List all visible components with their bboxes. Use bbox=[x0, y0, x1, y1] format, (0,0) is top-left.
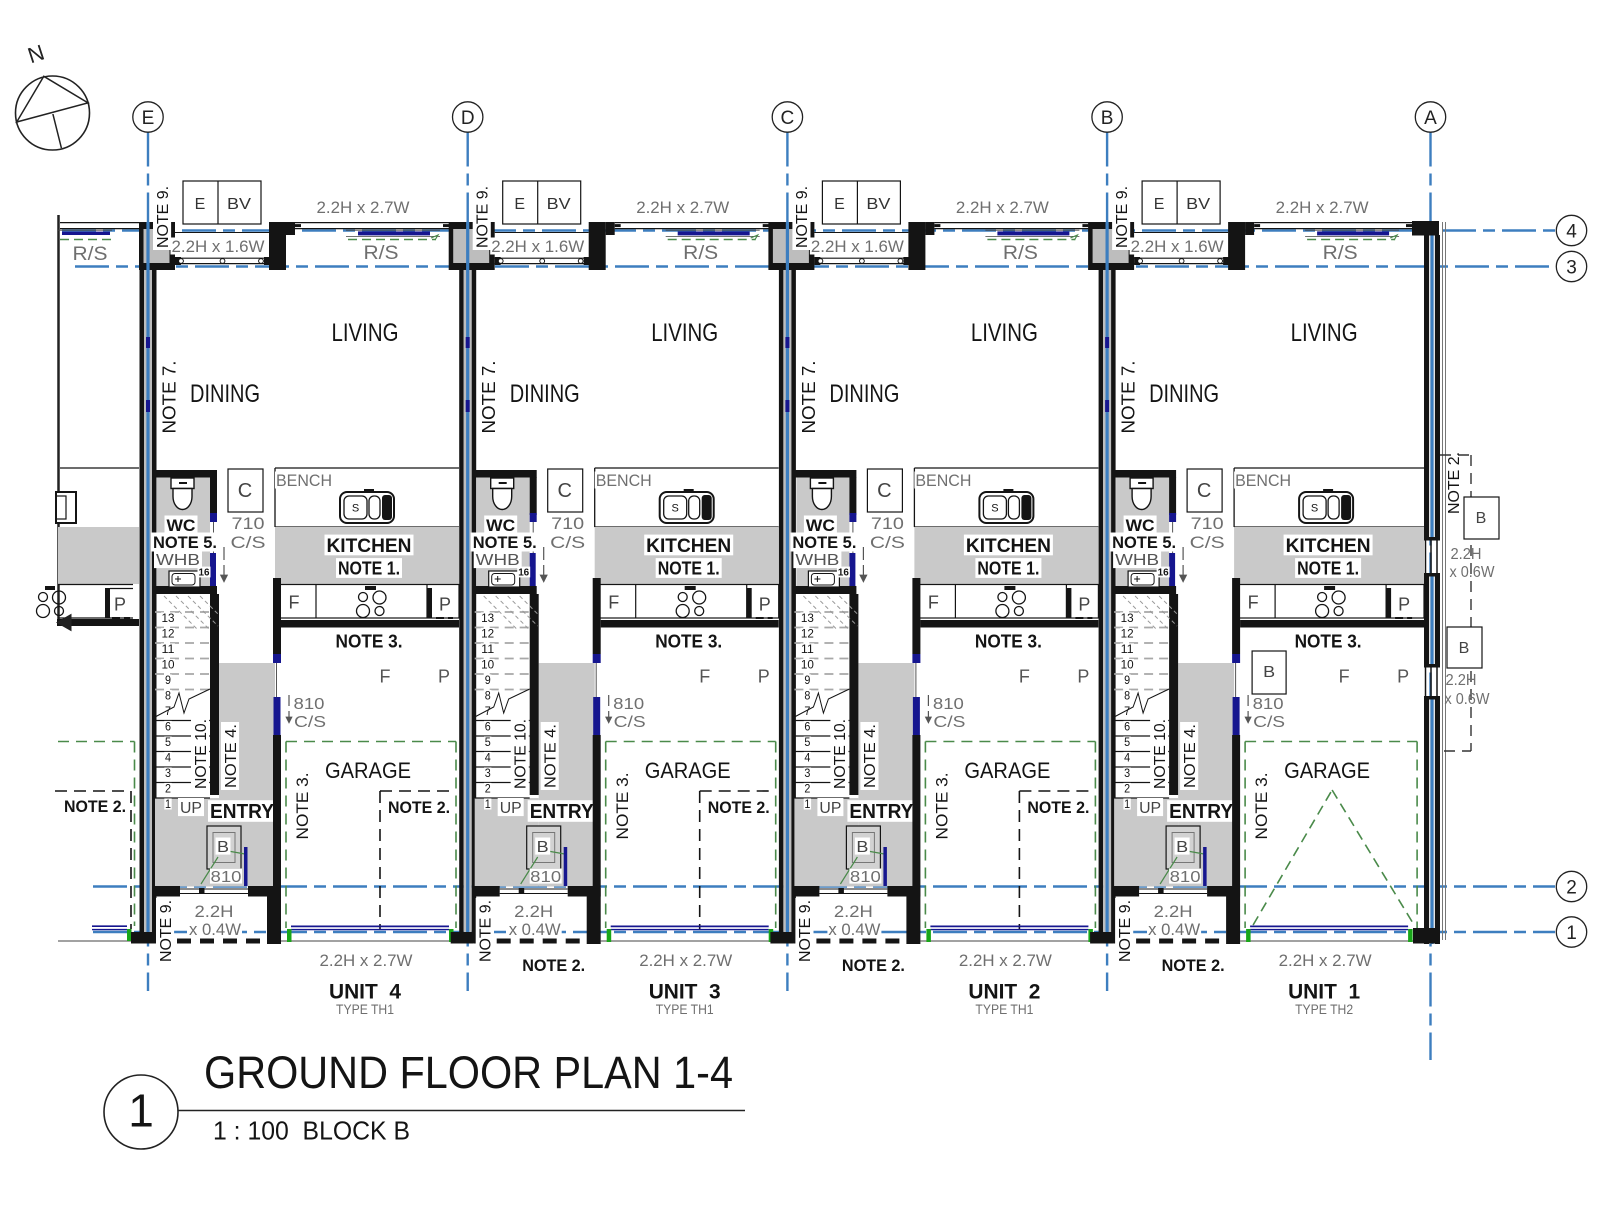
svg-text:NOTE 10.: NOTE 10. bbox=[193, 719, 210, 789]
svg-text:BV: BV bbox=[547, 196, 571, 213]
svg-text:12: 12 bbox=[481, 629, 494, 641]
svg-text:BV: BV bbox=[1186, 196, 1210, 213]
svg-text:NOTE 10.: NOTE 10. bbox=[513, 719, 530, 789]
svg-text:2.2H x 1.6W: 2.2H x 1.6W bbox=[491, 237, 584, 256]
svg-text:B: B bbox=[1459, 640, 1470, 657]
svg-text:NOTE 4.: NOTE 4. bbox=[543, 724, 560, 788]
svg-text:2.2H x 2.7W: 2.2H x 2.7W bbox=[317, 198, 410, 217]
svg-text:810: 810 bbox=[1170, 869, 1201, 886]
svg-text:KITCHEN: KITCHEN bbox=[327, 536, 412, 557]
svg-text:810: 810 bbox=[294, 696, 325, 713]
svg-text:6: 6 bbox=[804, 722, 810, 734]
svg-text:BV: BV bbox=[227, 196, 251, 213]
svg-text:6: 6 bbox=[165, 722, 171, 734]
svg-text:C/S: C/S bbox=[294, 714, 326, 731]
svg-text:NOTE 2.: NOTE 2. bbox=[1162, 956, 1225, 975]
svg-text:B: B bbox=[1176, 839, 1188, 856]
svg-text:810: 810 bbox=[933, 696, 964, 713]
svg-text:R/S: R/S bbox=[1323, 243, 1358, 264]
svg-text:10: 10 bbox=[1121, 660, 1134, 672]
svg-text:LIVING: LIVING bbox=[1291, 319, 1358, 347]
svg-text:13: 13 bbox=[481, 613, 494, 625]
svg-text:810: 810 bbox=[850, 869, 881, 886]
svg-text:3: 3 bbox=[1566, 257, 1577, 278]
svg-text:WHB: WHB bbox=[795, 552, 839, 569]
svg-text:7: 7 bbox=[485, 706, 491, 718]
svg-text:P: P bbox=[438, 667, 450, 687]
svg-text:1 : 100 BLOCK B: 1 : 100 BLOCK B bbox=[213, 1115, 410, 1145]
svg-text:NOTE 1.: NOTE 1. bbox=[658, 559, 720, 579]
svg-text:x 0.4W: x 0.4W bbox=[509, 920, 561, 939]
svg-text:1: 1 bbox=[1124, 799, 1130, 811]
svg-text:P: P bbox=[758, 667, 770, 687]
svg-text:DINING: DINING bbox=[829, 380, 899, 408]
svg-text:DINING: DINING bbox=[510, 380, 580, 408]
svg-text:NOTE 7.: NOTE 7. bbox=[799, 361, 819, 434]
svg-text:4: 4 bbox=[804, 753, 811, 765]
svg-text:C/S: C/S bbox=[231, 533, 266, 552]
svg-text:12: 12 bbox=[801, 629, 814, 641]
svg-text:16: 16 bbox=[838, 568, 849, 579]
svg-text:KITCHEN: KITCHEN bbox=[966, 536, 1051, 557]
svg-text:KITCHEN: KITCHEN bbox=[1286, 536, 1371, 557]
svg-text:12: 12 bbox=[1121, 629, 1134, 641]
svg-text:NOTE 9.: NOTE 9. bbox=[797, 900, 814, 962]
svg-text:NOTE 2.: NOTE 2. bbox=[388, 798, 450, 817]
svg-text:C: C bbox=[1197, 480, 1211, 502]
svg-text:NOTE 5.: NOTE 5. bbox=[1112, 533, 1176, 552]
svg-text:C/S: C/S bbox=[1190, 533, 1225, 552]
svg-text:NOTE 3.: NOTE 3. bbox=[933, 773, 952, 840]
svg-text:UP: UP bbox=[180, 800, 202, 817]
svg-text:7: 7 bbox=[804, 706, 810, 718]
svg-text:F: F bbox=[928, 593, 939, 613]
svg-text:1: 1 bbox=[804, 799, 810, 811]
svg-text:13: 13 bbox=[162, 613, 175, 625]
svg-text:LIVING: LIVING bbox=[332, 319, 399, 347]
svg-text:B: B bbox=[217, 839, 229, 856]
svg-text:1: 1 bbox=[1566, 923, 1577, 944]
svg-text:GARAGE: GARAGE bbox=[325, 758, 411, 783]
svg-text:2.2H x 2.7W: 2.2H x 2.7W bbox=[959, 951, 1052, 970]
svg-text:TYPE TH2: TYPE TH2 bbox=[1295, 1001, 1353, 1017]
svg-text:S: S bbox=[1311, 503, 1318, 515]
svg-text:NOTE 7.: NOTE 7. bbox=[160, 361, 180, 434]
svg-text:TYPE TH1: TYPE TH1 bbox=[336, 1001, 394, 1017]
svg-text:8: 8 bbox=[1124, 691, 1130, 703]
svg-text:R/S: R/S bbox=[1003, 243, 1038, 264]
svg-text:NOTE 10.: NOTE 10. bbox=[832, 719, 849, 789]
svg-text:E: E bbox=[142, 108, 155, 129]
svg-text:5: 5 bbox=[804, 737, 810, 749]
svg-text:x 0.6W: x 0.6W bbox=[1450, 564, 1496, 581]
svg-text:11: 11 bbox=[1121, 644, 1134, 656]
svg-text:S: S bbox=[352, 503, 359, 515]
svg-text:NOTE 5.: NOTE 5. bbox=[153, 533, 217, 552]
svg-text:2.2H x 2.7W: 2.2H x 2.7W bbox=[320, 951, 413, 970]
svg-text:13: 13 bbox=[1121, 613, 1134, 625]
svg-text:R/S: R/S bbox=[73, 244, 108, 265]
svg-text:P: P bbox=[439, 595, 451, 615]
svg-text:ENTRY: ENTRY bbox=[849, 801, 914, 823]
svg-text:C/S: C/S bbox=[933, 714, 965, 731]
svg-text:16: 16 bbox=[199, 568, 210, 579]
svg-text:2: 2 bbox=[1124, 784, 1130, 796]
svg-text:E: E bbox=[1154, 196, 1165, 213]
svg-text:NOTE 2.: NOTE 2. bbox=[522, 956, 585, 975]
svg-text:9: 9 bbox=[804, 675, 810, 687]
svg-text:DINING: DINING bbox=[1149, 380, 1219, 408]
svg-text:2.2H: 2.2H bbox=[1451, 546, 1482, 563]
svg-text:8: 8 bbox=[165, 691, 171, 703]
svg-text:810: 810 bbox=[1253, 696, 1284, 713]
svg-text:7: 7 bbox=[1124, 706, 1130, 718]
svg-text:UP: UP bbox=[500, 800, 522, 817]
svg-text:NOTE 2.: NOTE 2. bbox=[842, 956, 905, 975]
svg-text:NOTE 7.: NOTE 7. bbox=[1119, 361, 1139, 434]
svg-text:NOTE 7.: NOTE 7. bbox=[479, 361, 499, 434]
svg-text:1: 1 bbox=[128, 1085, 154, 1137]
svg-text:7: 7 bbox=[165, 706, 171, 718]
svg-text:NOTE 2.: NOTE 2. bbox=[1027, 798, 1089, 817]
svg-text:C: C bbox=[877, 480, 891, 502]
svg-text:NOTE 5.: NOTE 5. bbox=[473, 533, 537, 552]
svg-text:LIVING: LIVING bbox=[651, 319, 718, 347]
svg-text:C: C bbox=[238, 480, 252, 502]
svg-text:2.2H x 1.6W: 2.2H x 1.6W bbox=[1131, 237, 1224, 256]
svg-text:C/S: C/S bbox=[1253, 714, 1285, 731]
svg-text:2: 2 bbox=[165, 784, 171, 796]
svg-text:NOTE 4.: NOTE 4. bbox=[1182, 724, 1199, 788]
svg-text:1: 1 bbox=[165, 799, 171, 811]
svg-text:NOTE 9.: NOTE 9. bbox=[478, 900, 495, 962]
svg-text:NOTE 3.: NOTE 3. bbox=[613, 773, 632, 840]
svg-text:2.2H x 2.7W: 2.2H x 2.7W bbox=[639, 951, 732, 970]
svg-text:F: F bbox=[699, 667, 710, 687]
svg-text:9: 9 bbox=[165, 675, 171, 687]
svg-text:BENCH: BENCH bbox=[596, 471, 652, 490]
svg-text:R/S: R/S bbox=[364, 243, 399, 264]
svg-text:ENTRY: ENTRY bbox=[530, 801, 595, 823]
svg-text:F: F bbox=[1339, 667, 1350, 687]
svg-text:F: F bbox=[1248, 593, 1259, 613]
svg-text:8: 8 bbox=[804, 691, 810, 703]
svg-text:ENTRY: ENTRY bbox=[1169, 801, 1234, 823]
svg-text:P: P bbox=[1398, 595, 1410, 615]
svg-text:E: E bbox=[514, 196, 525, 213]
svg-text:NOTE 3.: NOTE 3. bbox=[1295, 632, 1362, 652]
svg-text:810: 810 bbox=[613, 696, 644, 713]
svg-text:2.2H: 2.2H bbox=[834, 902, 873, 921]
svg-text:NOTE 9.: NOTE 9. bbox=[155, 186, 172, 248]
svg-text:5: 5 bbox=[165, 737, 171, 749]
svg-text:9: 9 bbox=[485, 675, 491, 687]
svg-text:LIVING: LIVING bbox=[971, 319, 1038, 347]
svg-text:WHB: WHB bbox=[1115, 552, 1159, 569]
svg-text:NOTE 10.: NOTE 10. bbox=[1152, 719, 1169, 789]
svg-text:2: 2 bbox=[804, 784, 810, 796]
svg-text:C/S: C/S bbox=[870, 533, 905, 552]
svg-text:F: F bbox=[289, 593, 300, 613]
svg-text:10: 10 bbox=[801, 660, 814, 672]
svg-text:11: 11 bbox=[801, 644, 814, 656]
svg-text:P: P bbox=[1397, 667, 1409, 687]
svg-text:KITCHEN: KITCHEN bbox=[646, 536, 731, 557]
svg-text:2.2H x 2.7W: 2.2H x 2.7W bbox=[956, 198, 1049, 217]
svg-text:C/S: C/S bbox=[614, 714, 646, 731]
svg-text:NOTE 1.: NOTE 1. bbox=[1297, 559, 1359, 579]
svg-text:2.2H x 1.6W: 2.2H x 1.6W bbox=[172, 237, 265, 256]
svg-text:NOTE 2.: NOTE 2. bbox=[1446, 452, 1463, 514]
svg-text:10: 10 bbox=[162, 660, 175, 672]
svg-text:NOTE 3.: NOTE 3. bbox=[1252, 773, 1271, 840]
svg-text:2.2H: 2.2H bbox=[514, 902, 553, 921]
svg-text:P: P bbox=[759, 595, 771, 615]
svg-text:R/S: R/S bbox=[683, 243, 718, 264]
svg-text:B: B bbox=[1476, 510, 1487, 527]
svg-text:11: 11 bbox=[481, 644, 494, 656]
svg-text:BENCH: BENCH bbox=[276, 471, 332, 490]
svg-text:F: F bbox=[380, 667, 391, 687]
svg-text:WHB: WHB bbox=[156, 552, 200, 569]
svg-text:NOTE 3.: NOTE 3. bbox=[293, 773, 312, 840]
svg-text:B: B bbox=[537, 839, 549, 856]
svg-text:710: 710 bbox=[551, 514, 584, 533]
svg-text:C: C bbox=[557, 480, 571, 502]
svg-text:4: 4 bbox=[1124, 753, 1131, 765]
svg-text:NOTE 4.: NOTE 4. bbox=[862, 724, 879, 788]
svg-text:3: 3 bbox=[485, 768, 491, 780]
svg-text:TYPE TH1: TYPE TH1 bbox=[656, 1001, 714, 1017]
svg-text:NOTE 3.: NOTE 3. bbox=[975, 632, 1042, 652]
svg-text:GARAGE: GARAGE bbox=[1284, 758, 1370, 783]
svg-text:2.2H: 2.2H bbox=[1446, 672, 1477, 689]
svg-text:P: P bbox=[1078, 595, 1090, 615]
svg-text:2.2H x 2.7W: 2.2H x 2.7W bbox=[1276, 198, 1369, 217]
svg-text:F: F bbox=[1019, 667, 1030, 687]
svg-text:6: 6 bbox=[485, 722, 491, 734]
svg-text:3: 3 bbox=[804, 768, 810, 780]
svg-text:710: 710 bbox=[1191, 514, 1224, 533]
svg-text:BV: BV bbox=[866, 196, 890, 213]
svg-text:13: 13 bbox=[801, 613, 814, 625]
svg-text:4: 4 bbox=[485, 753, 492, 765]
svg-text:1: 1 bbox=[485, 799, 491, 811]
svg-text:2.2H: 2.2H bbox=[1154, 902, 1193, 921]
svg-text:4: 4 bbox=[1566, 221, 1577, 242]
svg-text:3: 3 bbox=[1124, 768, 1130, 780]
svg-text:GROUND FLOOR PLAN 1-4: GROUND FLOOR PLAN 1-4 bbox=[204, 1047, 733, 1098]
svg-text:2.2H x 2.7W: 2.2H x 2.7W bbox=[636, 198, 729, 217]
svg-text:B: B bbox=[1263, 664, 1275, 681]
svg-text:810: 810 bbox=[530, 869, 561, 886]
svg-text:NOTE 3.: NOTE 3. bbox=[655, 632, 722, 652]
svg-text:NOTE 4.: NOTE 4. bbox=[223, 724, 240, 788]
svg-text:11: 11 bbox=[162, 644, 175, 656]
svg-text:710: 710 bbox=[871, 514, 904, 533]
svg-text:E: E bbox=[195, 196, 206, 213]
svg-text:BENCH: BENCH bbox=[915, 471, 971, 490]
svg-text:810: 810 bbox=[211, 869, 242, 886]
svg-text:9: 9 bbox=[1124, 675, 1130, 687]
svg-text:NOTE 3.: NOTE 3. bbox=[336, 632, 403, 652]
svg-text:P: P bbox=[1077, 667, 1089, 687]
svg-text:710: 710 bbox=[232, 514, 265, 533]
svg-text:WHB: WHB bbox=[476, 552, 520, 569]
svg-text:UP: UP bbox=[819, 800, 841, 817]
svg-text:NOTE 9.: NOTE 9. bbox=[475, 186, 492, 248]
svg-text:A: A bbox=[1424, 108, 1437, 129]
svg-text:16: 16 bbox=[1158, 568, 1169, 579]
svg-text:F: F bbox=[608, 593, 619, 613]
svg-text:2.2H x 2.7W: 2.2H x 2.7W bbox=[1279, 951, 1372, 970]
svg-text:C: C bbox=[781, 108, 795, 129]
svg-text:E: E bbox=[834, 196, 845, 213]
svg-text:2: 2 bbox=[1566, 877, 1577, 898]
svg-text:10: 10 bbox=[481, 660, 494, 672]
svg-text:16: 16 bbox=[518, 568, 529, 579]
svg-text:NOTE 9.: NOTE 9. bbox=[794, 186, 811, 248]
svg-text:NOTE 9.: NOTE 9. bbox=[1117, 900, 1134, 962]
svg-text:S: S bbox=[991, 503, 998, 515]
svg-text:NOTE 5.: NOTE 5. bbox=[792, 533, 856, 552]
svg-text:BENCH: BENCH bbox=[1235, 471, 1291, 490]
svg-text:GARAGE: GARAGE bbox=[964, 758, 1050, 783]
svg-text:5: 5 bbox=[1124, 737, 1130, 749]
svg-text:D: D bbox=[461, 108, 475, 129]
svg-text:NOTE 9.: NOTE 9. bbox=[1114, 186, 1131, 248]
svg-text:NOTE 1.: NOTE 1. bbox=[977, 559, 1039, 579]
svg-text:5: 5 bbox=[485, 737, 491, 749]
svg-text:B: B bbox=[1101, 108, 1114, 129]
svg-text:2: 2 bbox=[485, 784, 491, 796]
svg-text:x 0.4W: x 0.4W bbox=[1148, 920, 1200, 939]
svg-text:8: 8 bbox=[485, 691, 491, 703]
svg-text:TYPE TH1: TYPE TH1 bbox=[975, 1001, 1033, 1017]
svg-text:UP: UP bbox=[1139, 800, 1161, 817]
svg-text:x 0.4W: x 0.4W bbox=[189, 920, 241, 939]
svg-text:6: 6 bbox=[1124, 722, 1130, 734]
svg-text:DINING: DINING bbox=[190, 380, 260, 408]
svg-text:NOTE 9.: NOTE 9. bbox=[158, 900, 175, 962]
svg-text:3: 3 bbox=[165, 768, 171, 780]
svg-text:C/S: C/S bbox=[550, 533, 585, 552]
svg-text:ENTRY: ENTRY bbox=[210, 801, 275, 823]
svg-text:S: S bbox=[672, 503, 679, 515]
svg-text:4: 4 bbox=[165, 753, 172, 765]
svg-text:12: 12 bbox=[162, 629, 175, 641]
svg-text:NOTE 1.: NOTE 1. bbox=[338, 559, 400, 579]
svg-text:NOTE 2.: NOTE 2. bbox=[64, 797, 126, 816]
svg-text:x 0.4W: x 0.4W bbox=[828, 920, 880, 939]
svg-text:B: B bbox=[856, 839, 868, 856]
svg-text:x 0.6W: x 0.6W bbox=[1445, 691, 1491, 708]
svg-text:2.2H: 2.2H bbox=[195, 902, 234, 921]
svg-text:NOTE 2.: NOTE 2. bbox=[708, 798, 770, 817]
svg-text:P: P bbox=[114, 595, 126, 615]
svg-text:2.2H x 1.6W: 2.2H x 1.6W bbox=[811, 237, 904, 256]
svg-text:GARAGE: GARAGE bbox=[645, 758, 731, 783]
